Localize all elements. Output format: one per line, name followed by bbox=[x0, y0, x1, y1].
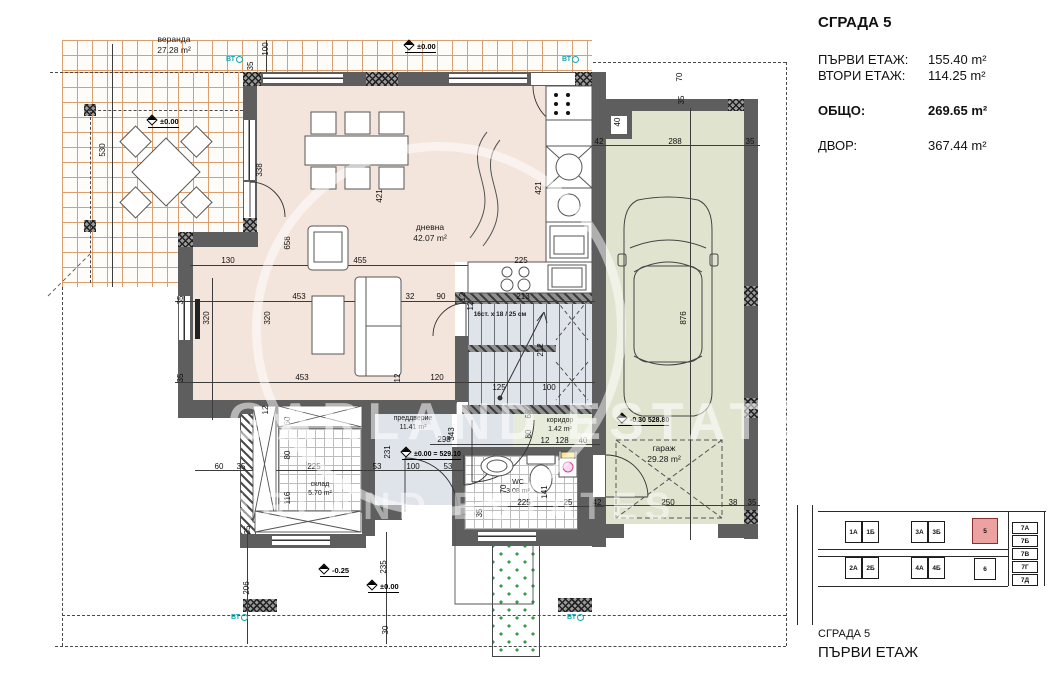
window-north-1 bbox=[263, 74, 343, 83]
siteplan-road bbox=[818, 586, 1008, 587]
info-panel-title: СГРАДА 5 bbox=[818, 14, 891, 31]
wall-stairs-west bbox=[455, 336, 468, 402]
dimension: 35 bbox=[746, 138, 755, 146]
dimension: 225 bbox=[517, 499, 530, 507]
roof-overhang-dashed bbox=[593, 62, 786, 63]
room-area: 27.28 m² bbox=[157, 45, 191, 56]
wall-garage-stub-left bbox=[606, 524, 624, 538]
level-marker-vestibule: ±0.00 = 529.10 bbox=[402, 448, 461, 460]
dimension: 80 bbox=[525, 430, 533, 439]
room-area: 42.07 m² bbox=[413, 233, 447, 244]
dim-line bbox=[190, 265, 592, 266]
info-value-floor1: 155.40 m² bbox=[928, 52, 987, 67]
dimension: 141 bbox=[541, 485, 549, 498]
level-marker-zero-outside: ±0.00 bbox=[368, 581, 399, 593]
siteplan-building-1А: 1А bbox=[845, 521, 862, 543]
siteplan-road bbox=[818, 549, 1008, 550]
wall-garage-stub-right bbox=[718, 524, 758, 538]
room-name: коридор bbox=[547, 416, 574, 425]
living-room-floor bbox=[257, 262, 455, 400]
wall-shaft bbox=[578, 447, 592, 546]
vt-marker: ВТ bbox=[226, 56, 243, 63]
dimension: 125 bbox=[492, 384, 505, 392]
dimension: 320 bbox=[203, 311, 211, 324]
siteplan-building-6: 6 bbox=[974, 558, 996, 580]
siteplan-road bbox=[1044, 511, 1045, 586]
dimension: 876 bbox=[680, 311, 688, 324]
room-area: 1.42 m² bbox=[547, 425, 574, 434]
dimension: 53 bbox=[373, 463, 382, 471]
dimension: 116 bbox=[284, 492, 292, 505]
veranda-tiles-inner bbox=[178, 72, 243, 232]
room-label-corridor: коридор 1.42 m² bbox=[547, 416, 574, 434]
siteplan-road bbox=[1008, 511, 1009, 586]
dimension: 35 bbox=[678, 96, 686, 105]
dimension: 42 bbox=[595, 138, 604, 146]
garage-door-opening bbox=[593, 455, 605, 497]
dimension: 35 bbox=[177, 296, 185, 305]
yard-boundary-dashed bbox=[55, 646, 786, 647]
dimension: 453 bbox=[292, 293, 305, 301]
dim-line bbox=[430, 444, 600, 445]
dimension: 130 bbox=[221, 257, 234, 265]
dimension: 100 bbox=[406, 463, 419, 471]
paving-pad bbox=[558, 598, 592, 612]
dimension: 12 bbox=[394, 374, 402, 383]
dimension: 35 bbox=[476, 509, 484, 518]
wall-garage-east bbox=[744, 99, 758, 539]
column bbox=[366, 72, 398, 86]
dimension: 35 bbox=[244, 526, 252, 535]
dimension: 40 bbox=[614, 118, 622, 127]
level-marker-minus25: -0.25 bbox=[320, 565, 349, 577]
dimension: 320 bbox=[264, 311, 272, 324]
siteplan-caption-floor: ПЪРВИ ЕТАЖ bbox=[818, 644, 918, 661]
room-area: 3.08 m² bbox=[506, 487, 530, 496]
siteplan-building-7В: 7В bbox=[1012, 548, 1038, 560]
dimension: 250 bbox=[661, 499, 674, 507]
dimension: 100 bbox=[262, 42, 270, 55]
dimension: 12 bbox=[541, 437, 550, 445]
siteplan-building-7А: 7А bbox=[1012, 522, 1038, 534]
dim-line bbox=[175, 382, 595, 383]
dimension: 35 bbox=[237, 463, 246, 471]
siteplan-building-4Б: 4Б bbox=[928, 557, 945, 579]
room-label-veranda: веранда 27.28 m² bbox=[157, 34, 191, 56]
room-name: гараж bbox=[647, 443, 681, 454]
siteplan-building-5: 5 bbox=[972, 518, 998, 544]
window-storage bbox=[272, 536, 330, 545]
pergola-dashed-line bbox=[90, 112, 91, 283]
door-opening-north bbox=[531, 73, 575, 85]
dimension: 120 bbox=[430, 374, 443, 382]
dim-line bbox=[195, 470, 463, 471]
room-name: склад bbox=[308, 480, 332, 489]
dimension: 35 bbox=[748, 499, 757, 507]
paving-pad bbox=[243, 599, 277, 612]
entrance-door-opening bbox=[402, 505, 452, 520]
room-name: веранда bbox=[157, 34, 191, 45]
dimension: 213 bbox=[516, 293, 529, 301]
room-label-garage: гараж 29.28 m² bbox=[647, 443, 681, 465]
siteplan-road bbox=[797, 505, 798, 625]
column bbox=[744, 398, 758, 418]
dimension: 12 bbox=[459, 293, 467, 302]
room-name: WC bbox=[506, 478, 530, 487]
info-label-floor1: ПЪРВИ ЕТАЖ: bbox=[818, 52, 908, 67]
siteplan-road bbox=[812, 505, 813, 625]
dimension: 288 bbox=[668, 138, 681, 146]
vt-marker: ВТ bbox=[567, 614, 584, 621]
dimension: 658 bbox=[284, 236, 292, 249]
siteplan-building-7Б: 7Б bbox=[1012, 535, 1038, 547]
room-label-living: дневна 42.07 m² bbox=[413, 222, 447, 244]
dimension: 206 bbox=[243, 581, 251, 594]
wall-wc-north bbox=[452, 447, 595, 455]
dimension: 70 bbox=[676, 73, 684, 82]
info-label-floor2: ВТОРИ ЕТАЖ: bbox=[818, 68, 905, 83]
dimension: 60 bbox=[284, 417, 292, 426]
dimension: 12 bbox=[262, 406, 270, 415]
veranda-tiles-left bbox=[62, 72, 178, 287]
siteplan-building-2Б: 2Б bbox=[862, 557, 879, 579]
floor-plan-page: веранда 27.28 m² дневна 42.07 m² преддве… bbox=[0, 0, 1050, 680]
room-label-vestibule: преддверие 11.41 m² bbox=[394, 414, 433, 432]
room-label-storage: склад 5.70 m² bbox=[308, 480, 332, 498]
wall-living-south bbox=[190, 400, 457, 414]
planting-strip bbox=[492, 545, 540, 657]
room-area: 11.41 m² bbox=[394, 423, 433, 432]
window-north-2 bbox=[449, 74, 527, 83]
vt-marker: ВТ bbox=[231, 614, 248, 621]
dimension: 225 bbox=[307, 463, 320, 471]
pergola-dashed-line bbox=[50, 72, 243, 73]
info-value-total: 269.65 m² bbox=[928, 103, 987, 118]
dimension: 421 bbox=[535, 181, 543, 194]
level-marker-zero-veranda: ±0.00 bbox=[148, 116, 179, 128]
dim-line bbox=[212, 278, 213, 420]
dimension: 421 bbox=[376, 189, 384, 202]
dimension: 32 bbox=[406, 293, 415, 301]
dimension: 30 bbox=[382, 626, 390, 635]
dimension: 42 bbox=[593, 499, 602, 507]
siteplan-caption-building: СГРАДА 5 bbox=[818, 628, 870, 640]
dim-line bbox=[175, 301, 595, 302]
dimension: 12 bbox=[467, 302, 475, 311]
dimension: 338 bbox=[256, 163, 264, 176]
siteplan-building-7Г: 7Г bbox=[1012, 561, 1038, 573]
dimension: 65 bbox=[525, 410, 533, 419]
dimension: 35 bbox=[247, 62, 255, 71]
siteplan-building-1Б: 1Б bbox=[862, 521, 879, 543]
stairs-note: 16ст. x 18 / 25 см bbox=[474, 311, 527, 319]
room-name: преддверие bbox=[394, 414, 433, 423]
room-name: дневна bbox=[413, 222, 447, 233]
window-west bbox=[244, 120, 255, 180]
dimension: 231 bbox=[384, 445, 392, 458]
column bbox=[744, 286, 758, 306]
level-marker-zero-top: ±0.00 bbox=[405, 41, 436, 53]
dimension: 212 bbox=[537, 343, 545, 356]
info-label-yard: ДВОР: bbox=[818, 138, 857, 153]
dimension: 530 bbox=[99, 143, 107, 156]
siteplan-building-3Б: 3Б bbox=[928, 521, 945, 543]
dimension: 70 bbox=[500, 485, 508, 494]
column bbox=[178, 232, 193, 247]
dimension: 53 bbox=[444, 463, 453, 471]
wall-garage-north bbox=[606, 99, 746, 111]
yard-boundary-dashed bbox=[786, 62, 787, 646]
dimension: 235 bbox=[380, 560, 388, 573]
vt-marker: ВТ bbox=[562, 56, 579, 63]
info-value-yard: 367.44 m² bbox=[928, 138, 987, 153]
room-label-wc: WC 3.08 m² bbox=[506, 478, 530, 496]
dimension: 100 bbox=[542, 384, 555, 392]
wall-east-house-low bbox=[592, 517, 606, 547]
siteplan-building-2А: 2А bbox=[845, 557, 862, 579]
level-marker-garage: -0.30 528.80 bbox=[618, 414, 669, 426]
dim-line bbox=[462, 506, 604, 507]
dimension: 25 bbox=[564, 499, 573, 507]
column bbox=[243, 72, 261, 86]
dimension: 225 bbox=[514, 257, 527, 265]
column bbox=[728, 99, 744, 111]
window-wc bbox=[478, 532, 536, 541]
yard-boundary-dashed bbox=[62, 287, 63, 646]
veranda-tiles-top bbox=[62, 40, 592, 72]
info-label-total: ОБЩО: bbox=[818, 103, 865, 118]
dimension: 128 bbox=[555, 437, 568, 445]
vestibule-floor bbox=[457, 414, 513, 447]
dimension: 80 bbox=[284, 451, 292, 460]
yard-line-dashed bbox=[62, 615, 786, 616]
dim-line bbox=[690, 108, 691, 540]
dimension: 455 bbox=[353, 257, 366, 265]
dimension: 298 bbox=[437, 436, 450, 444]
column bbox=[243, 218, 257, 232]
dimension: 38 bbox=[729, 499, 738, 507]
dimension: 90 bbox=[437, 293, 446, 301]
info-value-floor2: 114.25 m² bbox=[928, 68, 986, 83]
dimension: 453 bbox=[295, 374, 308, 382]
dimension: 40 bbox=[579, 437, 588, 445]
room-area: 5.70 m² bbox=[308, 489, 332, 498]
siteplan-building-3А: 3А bbox=[911, 521, 928, 543]
siteplan-building-4А: 4А bbox=[911, 557, 928, 579]
siteplan-building-7Д: 7Д bbox=[1012, 574, 1038, 586]
column bbox=[575, 72, 592, 86]
dimension: 60 bbox=[215, 463, 224, 471]
dimension: 35 bbox=[177, 374, 185, 383]
dim-line bbox=[112, 44, 113, 287]
siteplan-road bbox=[818, 511, 1046, 512]
room-area: 29.28 m² bbox=[647, 454, 681, 465]
veranda-door-opening bbox=[244, 182, 255, 218]
